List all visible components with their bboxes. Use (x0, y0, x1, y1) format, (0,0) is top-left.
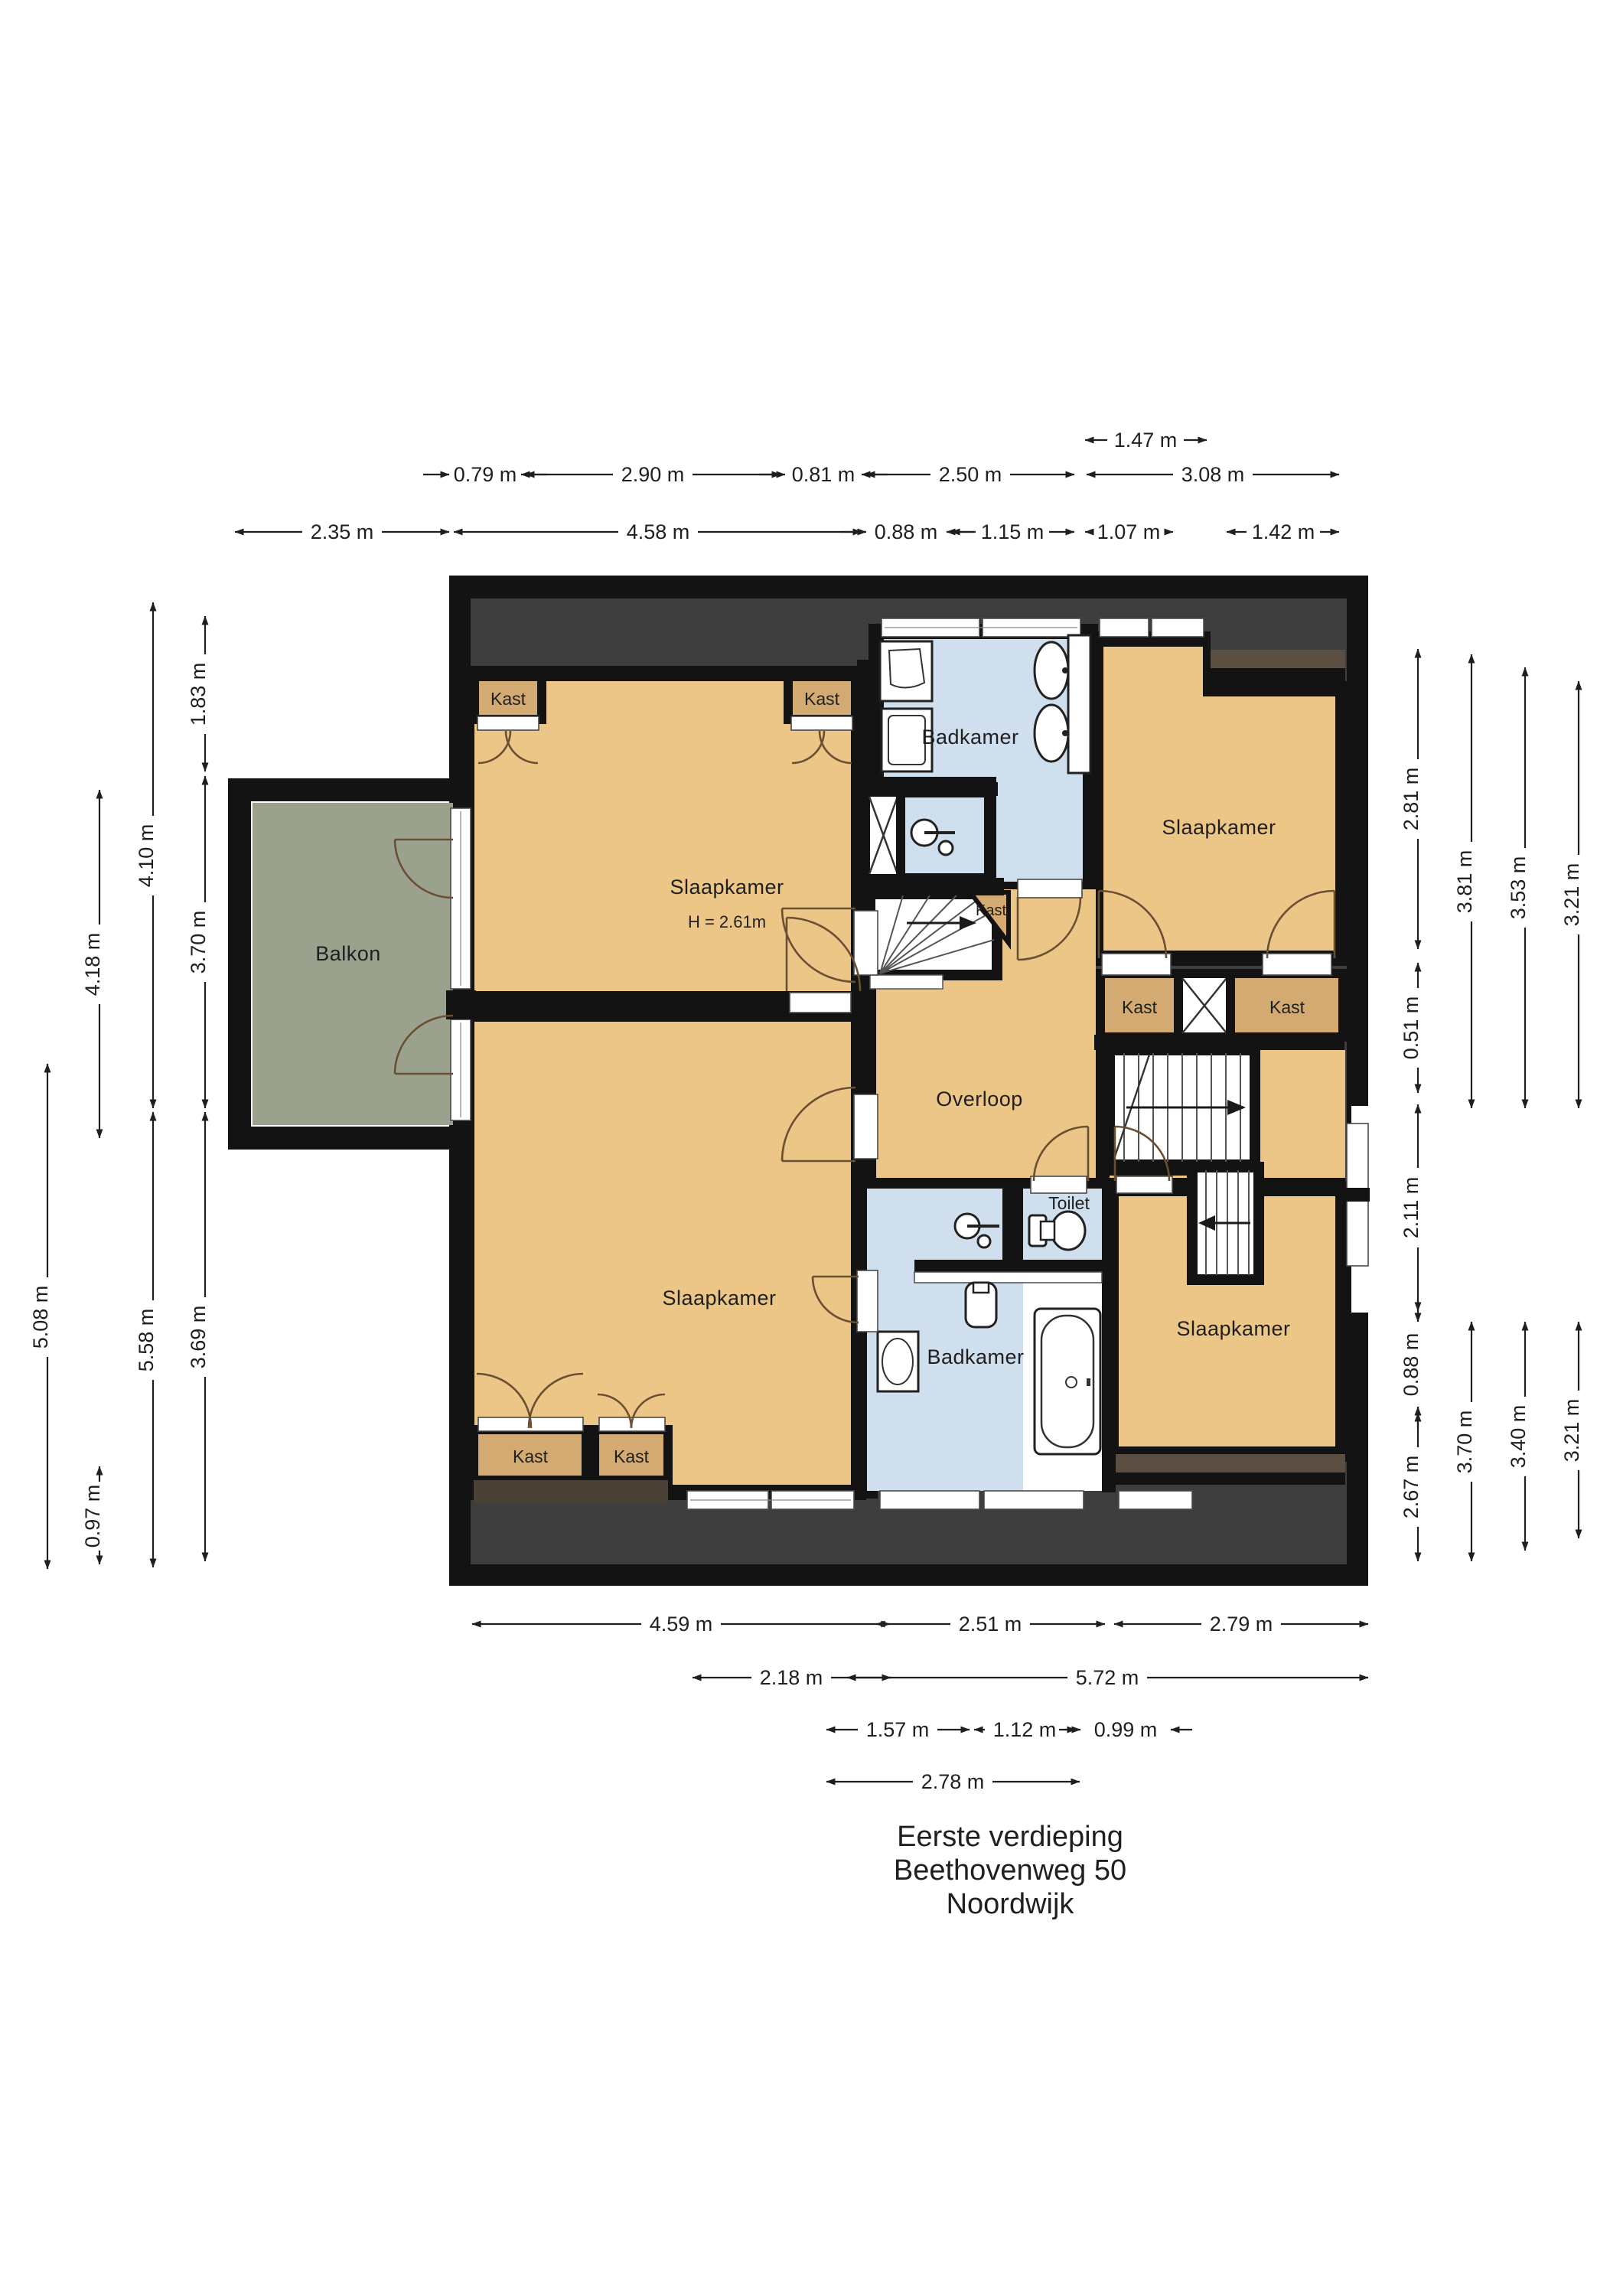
dimension-label: 0.88 m (875, 520, 938, 543)
toilet-label: Toilet (1048, 1193, 1090, 1213)
closet-label: Kast (490, 689, 526, 709)
dimension-label: 1.83 m (187, 663, 210, 726)
overloop-right-strip (1255, 1050, 1345, 1181)
dimension-label: 1.15 m (981, 520, 1045, 543)
roof-brown-topright (1211, 650, 1345, 670)
shower-icon (880, 641, 932, 701)
dimension-label: 0.79 m (454, 463, 517, 486)
floorplan-page: Balkon (0, 0, 1623, 2296)
dimension-label: 0.51 m (1400, 996, 1423, 1060)
closet-label: Kast (1122, 997, 1158, 1017)
dimension-label: 2.35 m (311, 520, 374, 543)
sink-icon (966, 1283, 996, 1327)
dimension-label: 1.47 m (1114, 429, 1178, 452)
dimension-label: 3.53 m (1507, 856, 1530, 920)
title-city: Noordwijk (947, 1888, 1075, 1920)
wall-toilet-left (1002, 1189, 1023, 1270)
dimension-label: 4.18 m (81, 933, 104, 996)
wall-bathroom-counter (914, 1260, 1102, 1272)
dimension-label: 1.07 m (1097, 520, 1161, 543)
wall-topright (1211, 668, 1345, 688)
dimension-label: 1.42 m (1252, 520, 1315, 543)
roof-band-topright (1211, 602, 1345, 651)
closet-label: Kast (1269, 997, 1305, 1017)
laundry-sink-icon (878, 1332, 918, 1391)
dimension-label: 2.90 m (621, 463, 685, 486)
dimension-label: 2.50 m (939, 463, 1002, 486)
bedroom-bottomleft-label: Slaapkamer (662, 1287, 776, 1309)
closet-label: Kast (513, 1446, 549, 1466)
dimension-label: 2.78 m (921, 1770, 985, 1793)
dimension-label: 5.72 m (1076, 1666, 1139, 1689)
staircase-main (1110, 1050, 1255, 1165)
roof-brown-bottomright (1116, 1454, 1345, 1474)
ceiling-height-label: H = 2.61m (688, 912, 766, 931)
dimension-label: 3.70 m (1453, 1411, 1476, 1474)
dimension-label: 2.81 m (1400, 768, 1423, 831)
wall-stair-bottom (1110, 1162, 1194, 1176)
roof-brown-bottomleft (474, 1480, 668, 1503)
dimension-label: 4.59 m (650, 1613, 713, 1636)
dimension-label: 1.57 m (866, 1718, 930, 1741)
bathroom-bottom-label: Badkamer (927, 1345, 1024, 1368)
dimension-label: 2.11 m (1400, 1177, 1423, 1239)
dimension-label: 4.58 m (627, 520, 690, 543)
wall-bottomright (1116, 1473, 1345, 1485)
bedroom-bottomright-label: Slaapkamer (1176, 1317, 1290, 1340)
dimension-label: 2.51 m (959, 1613, 1022, 1636)
closet-label: Kast (614, 1446, 650, 1466)
dimension-label: 0.99 m (1094, 1718, 1158, 1741)
dimension-label: 0.88 m (1400, 1333, 1423, 1397)
dimension-label: 3.70 m (187, 911, 210, 974)
dimension-label: 5.58 m (135, 1309, 158, 1372)
dimension-label: 0.97 m (81, 1485, 104, 1548)
dimension-label: 5.08 m (29, 1286, 52, 1349)
balcony: Balkon (240, 790, 467, 1138)
bedroom-topleft-label: Slaapkamer (670, 876, 784, 899)
dimension-label: 2.18 m (760, 1666, 823, 1689)
closet-label: Kast (804, 689, 840, 709)
title-floor: Eerste verdieping (897, 1821, 1123, 1853)
dimension-label: 4.10 m (135, 824, 158, 888)
bathtub-icon (1035, 1309, 1100, 1454)
counter (914, 1272, 1102, 1283)
dimension-label: 0.81 m (792, 463, 855, 486)
dimension-label: 3.08 m (1181, 463, 1245, 486)
bathroom-top-label: Badkamer (921, 726, 1018, 748)
title-street: Beethovenweg 50 (894, 1854, 1126, 1887)
dimension-label: 3.81 m (1453, 850, 1476, 914)
toilet-icon (1029, 1212, 1085, 1250)
dimension-label: 3.40 m (1507, 1405, 1530, 1469)
closet-label: Kast (976, 902, 1006, 919)
dimension-label: 2.67 m (1400, 1456, 1423, 1519)
overloop-label: Overloop (936, 1088, 1023, 1110)
dimension-label: 3.69 m (187, 1306, 210, 1369)
dimension-label: 1.12 m (993, 1718, 1057, 1741)
dimension-label: 2.79 m (1210, 1613, 1273, 1636)
balcony-label: Balkon (315, 942, 381, 965)
dimension-label: 3.21 m (1560, 1399, 1583, 1463)
floorplan-svg: Balkon (0, 0, 1623, 2296)
dimension-label: 3.21 m (1560, 863, 1583, 927)
floor-plan: Balkon (240, 576, 1370, 1586)
title-block: Eerste verdieping Beethovenweg 50 Noordw… (894, 1821, 1126, 1920)
bedroom-topright-label: Slaapkamer (1162, 816, 1276, 839)
